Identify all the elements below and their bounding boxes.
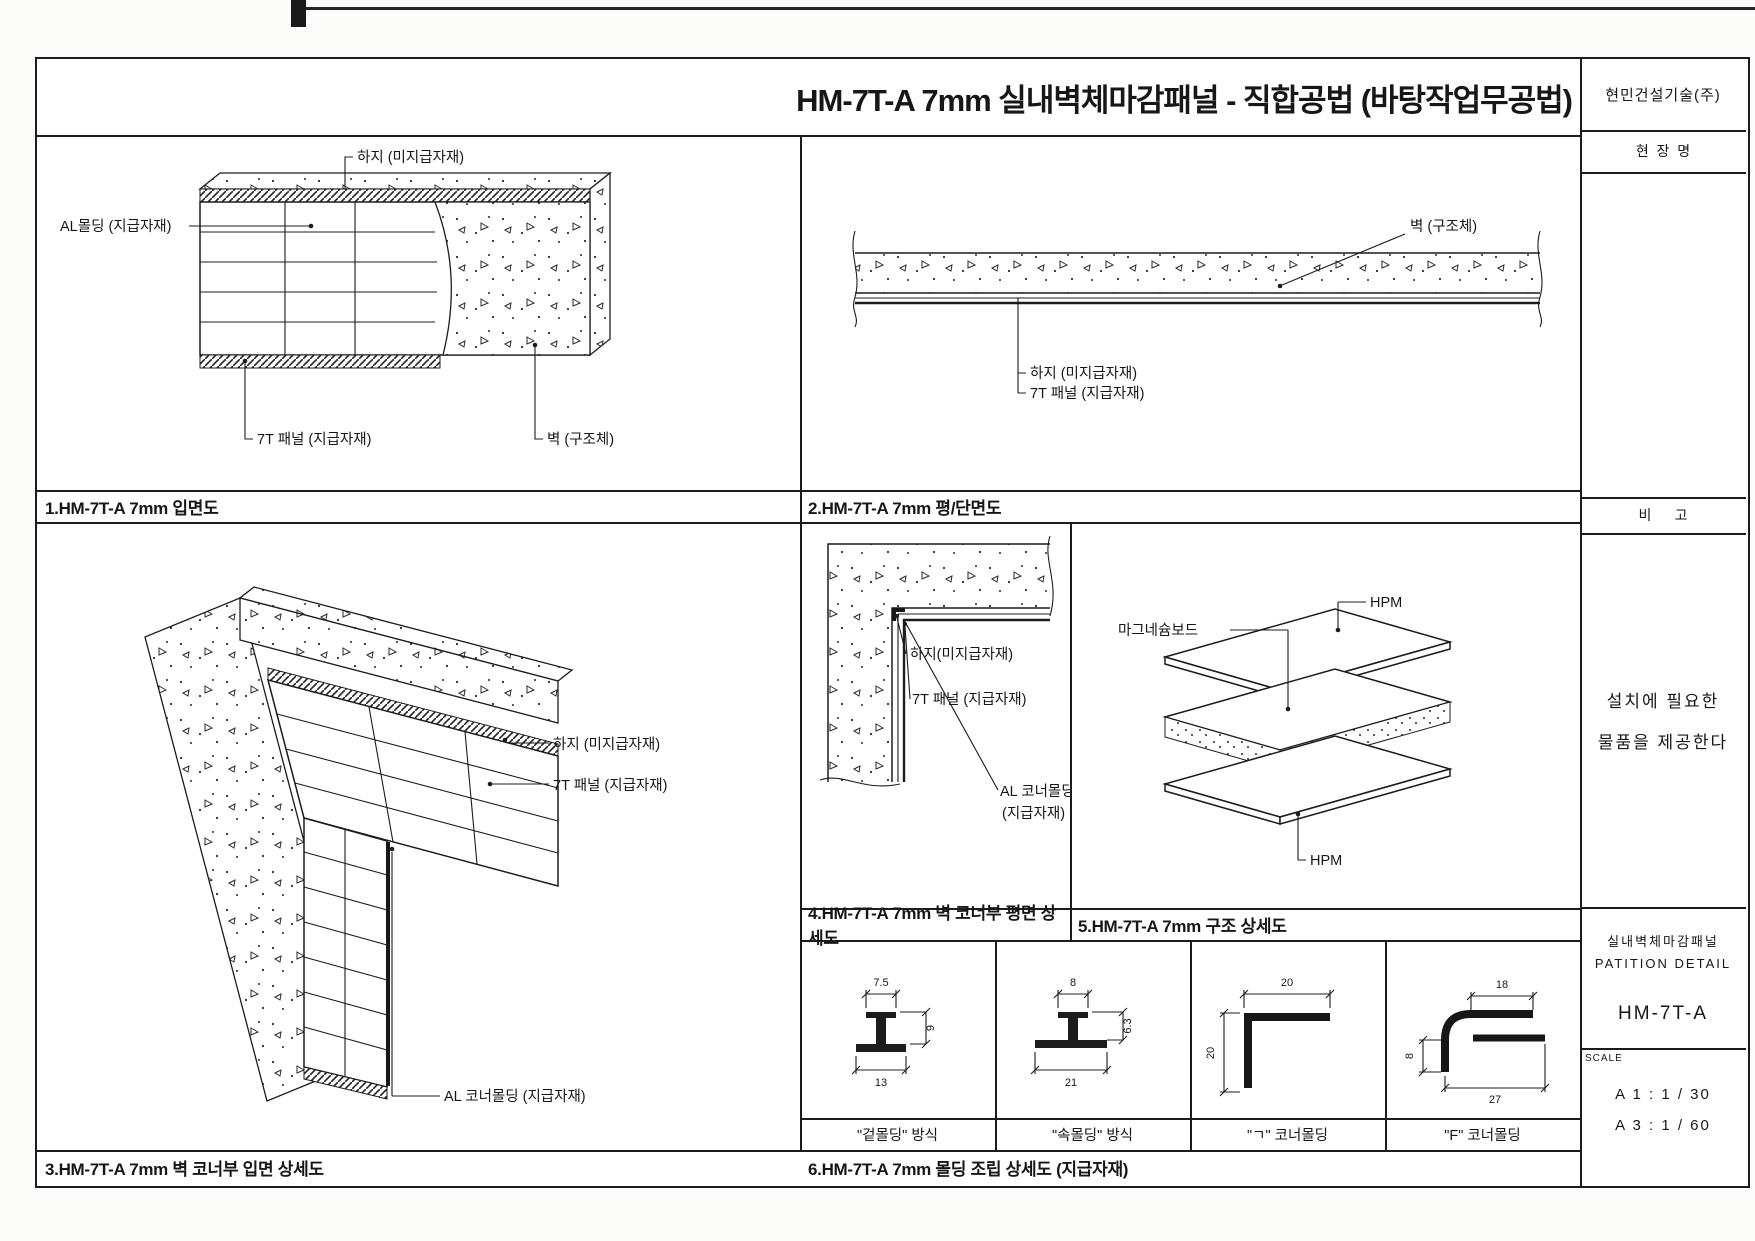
p4-label-corner-2: (지급자재): [1002, 805, 1065, 822]
scan-artifact-mark: [291, 0, 306, 27]
p1-leader-wall: 벽 (구조체): [533, 343, 614, 448]
p3-label-panel: 7T 패널 (지급자재): [553, 777, 667, 794]
p4-concrete-L: [828, 544, 1050, 782]
drawing-frame: HM-7T-A 7mm 실내벽체마감패널 - 직합공법 (바탕작업무공법) 현민…: [35, 57, 1750, 1188]
p1-label-molding: AL몰딩 (지급자재): [60, 218, 171, 235]
panel-2-section-drawing: 벽 (구조체) 하지 (미지급자재) 7T 패널 (지급자재): [800, 135, 1580, 490]
p6c2-dim-top: 8: [1070, 977, 1076, 989]
p3-label-base: 하지 (미지급자재): [553, 736, 660, 753]
caption-panel1: 1.HM-7T-A 7mm 입면도: [37, 490, 800, 522]
p3-label-corner: AL 코너몰딩 (지급자재): [444, 1088, 586, 1105]
p2-label-base: 하지 (미지급자재): [1030, 365, 1137, 382]
p6c3-dim-top: 20: [1281, 977, 1293, 989]
remark-note-line2: 물품을 제공한다: [1598, 728, 1728, 753]
p5-leader-hpm-bottom: HPM: [1296, 812, 1343, 869]
title-block: 실내벽체마감패널 PATITION DETAIL HM-7T-A: [1580, 907, 1746, 1048]
p1-label-wall: 벽 (구조체): [547, 431, 614, 448]
p6c2-dim-bottom: 21: [1065, 1077, 1077, 1089]
panel-5-structure-drawing: 마그네슘보드 HPM HPM: [1070, 522, 1580, 908]
drawing-name-en: PATITION DETAIL: [1595, 956, 1731, 971]
panel-6-cell2-drawing: 8 6.3 21: [995, 940, 1190, 1118]
p1-iso-top-face: [200, 173, 610, 189]
p4-leader-base: 하지(미지급자재): [895, 614, 1013, 663]
p6c1-dim-height: 9: [925, 1025, 937, 1031]
p4-label-corner-1: AL 코너몰딩: [1000, 783, 1070, 800]
p4-label-base: 하지(미지급자재): [910, 646, 1013, 663]
p6c3-dim-side: 20: [1205, 1047, 1217, 1059]
caption-panel6: 6.HM-7T-A 7mm 몰딩 조립 상세도 (지급자재): [800, 1150, 1580, 1184]
p6c1-dim-bottom: 13: [875, 1077, 887, 1089]
p4-leader-panel: 7T 패널 (지급자재): [903, 622, 1026, 708]
panel-1-elevation-drawing: 하지 (미지급자재) AL몰딩 (지급자재) 7T 패널 (지급자재) 벽 (구…: [37, 135, 800, 490]
panel-6-cell3-drawing: 20 20: [1190, 940, 1385, 1118]
scale-a1: A 1 : 1 / 30: [1580, 1086, 1746, 1103]
remark-note: 설치에 필요한 물품을 제공한다: [1580, 533, 1746, 907]
p6c4-dim-lines: [1419, 992, 1549, 1092]
p6c2-dim-lines: [1031, 990, 1127, 1074]
p2-concrete-band: [855, 253, 1540, 293]
caption-panel5: 5.HM-7T-A 7mm 구조 상세도: [1070, 908, 1580, 940]
panel-6-cell4-drawing: 18 8 27: [1385, 940, 1580, 1118]
remark-label: 비 고: [1580, 497, 1746, 533]
p1-concrete-wall: [435, 202, 590, 355]
drawing-name-kr: 실내벽체마감패널: [1607, 931, 1719, 950]
caption-panel3: 3.HM-7T-A 7mm 벽 코너부 입면 상세도: [37, 1150, 800, 1184]
p1-label-base: 하지 (미지급자재): [357, 149, 464, 166]
panel-4-corner-plan-drawing: 하지(미지급자재) 7T 패널 (지급자재) AL 코너몰딩 (지급자재): [800, 522, 1070, 908]
p6c3-dim-lines: [1220, 990, 1334, 1096]
drawing-sheet: HM-7T-A 7mm 실내벽체마감패널 - 직합공법 (바탕작업무공법) 현민…: [0, 0, 1755, 1241]
p6-cell4-name: "F" 코너몰딩: [1385, 1118, 1580, 1150]
p2-label-panel: 7T 패널 (지급자재): [1030, 385, 1144, 402]
scale-a3: A 3 : 1 / 60: [1580, 1117, 1746, 1134]
p6c4-profile: [1445, 1014, 1545, 1072]
p6c4-dim-side: 8: [1404, 1053, 1416, 1059]
p1-side-face: [590, 173, 610, 355]
scan-artifact-line: [296, 7, 1755, 10]
caption-panel2: 2.HM-7T-A 7mm 평/단면도: [800, 490, 1580, 522]
p2-leader-layers: 하지 (미지급자재) 7T 패널 (지급자재): [1018, 298, 1144, 402]
p6c4-dim-top: 18: [1496, 979, 1508, 991]
p5-label-hpm-bottom: HPM: [1310, 853, 1342, 869]
company-name: 현민건설기술(주): [1580, 59, 1746, 130]
p6c3-profile: [1248, 1017, 1330, 1088]
p4-label-panel: 7T 패널 (지급자재): [912, 691, 1026, 708]
p1-leader-panel: 7T 패널 (지급자재): [243, 359, 372, 448]
scale-label: SCALE: [1580, 1048, 1623, 1064]
p1-base-strip: [200, 189, 590, 202]
drawing-code: HM-7T-A: [1618, 1003, 1708, 1025]
p6c1-profile: [856, 1012, 906, 1052]
caption-panel4: 4.HM-7T-A 7mm 벽 코너부 평면 상세도: [800, 908, 1070, 940]
p6-cell2-name: "속몰딩" 방식: [995, 1118, 1190, 1150]
site-name-label: 현 장 명: [1580, 130, 1746, 172]
scale-block: SCALE A 1 : 1 / 30 A 3 : 1 / 60: [1580, 1048, 1746, 1184]
p1-label-panel: 7T 패널 (지급자재): [257, 431, 371, 448]
p5-label-hpm-top: HPM: [1370, 595, 1402, 611]
p6c1-dim-top: 7.5: [873, 977, 888, 989]
sheet-title: HM-7T-A 7mm 실내벽체마감패널 - 직합공법 (바탕작업무공법): [37, 59, 1580, 135]
p2-label-wall: 벽 (구조체): [1410, 218, 1477, 235]
panel-3-corner-elevation-drawing: 하지 (미지급자재) 7T 패널 (지급자재) AL 코너몰딩 (지급자재): [37, 522, 800, 1150]
p6c2-dim-height: 6.3: [1122, 1018, 1134, 1033]
p5-label-core: 마그네슘보드: [1118, 622, 1198, 639]
panel-6-cell1-drawing: 7.5 9 13: [800, 940, 995, 1118]
p1-bottom-molding-bar: [200, 355, 440, 368]
p6c4-dim-bottom: 27: [1489, 1094, 1501, 1106]
p6c1-dim-lines: [852, 990, 930, 1074]
p6-cell3-name: "ㄱ" 코너몰딩: [1190, 1118, 1385, 1150]
sidebar-line2: [1580, 172, 1746, 174]
p6c2-profile: [1035, 1012, 1107, 1048]
remark-note-line1: 설치에 필요한: [1607, 687, 1720, 712]
p6-cell1-name: "겉몰딩" 방식: [800, 1118, 995, 1150]
